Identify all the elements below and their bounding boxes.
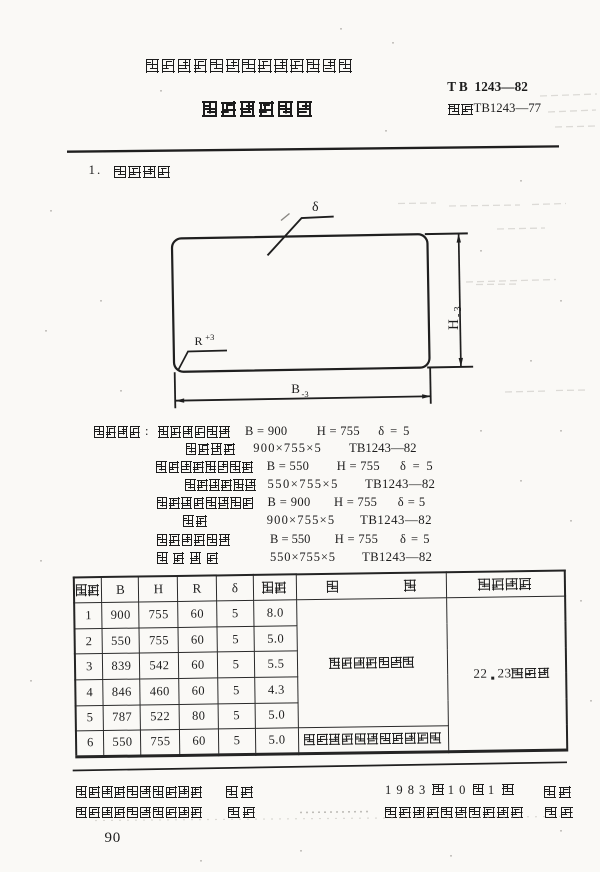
svg-text:H-3: H-3 xyxy=(446,304,464,330)
